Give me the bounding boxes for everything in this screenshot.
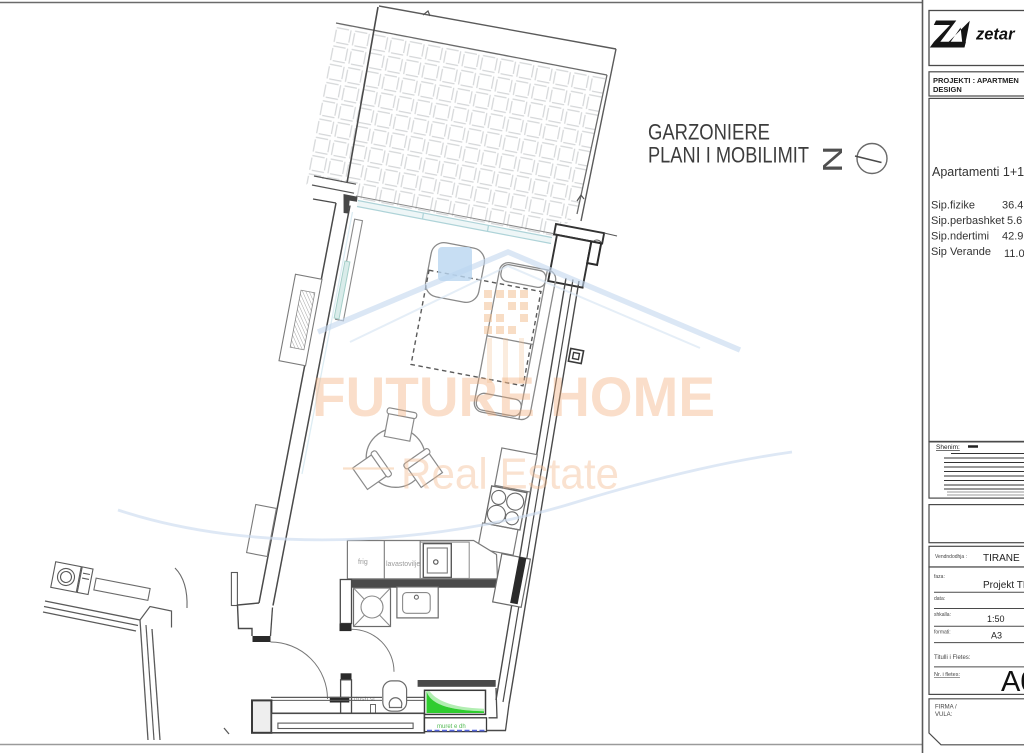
svg-text:Apartamenti 1+1: Apartamenti 1+1 bbox=[932, 165, 1024, 179]
svg-text:A0: A0 bbox=[1001, 666, 1024, 698]
svg-text:Vendndodhja :: Vendndodhja : bbox=[935, 554, 967, 560]
svg-text:Projekt TEK: Projekt TEK bbox=[983, 580, 1024, 591]
svg-text:Sip.ndertimi: Sip.ndertimi bbox=[931, 231, 989, 243]
svg-text:PROJEKTI : APARTMEN: PROJEKTI : APARTMEN bbox=[933, 76, 1019, 85]
svg-text:Shenim:: Shenim: bbox=[936, 444, 960, 451]
svg-text:lavastovilje: lavastovilje bbox=[386, 561, 420, 568]
svg-text:TIRANE: TIRANE bbox=[983, 553, 1020, 564]
svg-text:data:: data: bbox=[934, 596, 945, 602]
svg-text:frig: frig bbox=[358, 559, 368, 566]
svg-text:Nr. i fletes:: Nr. i fletes: bbox=[934, 672, 960, 678]
svg-text:GARZONIERE: GARZONIERE bbox=[648, 120, 770, 145]
svg-text:formati:: formati: bbox=[934, 630, 951, 636]
svg-text:36.4: 36.4 bbox=[1002, 200, 1023, 212]
svg-text:5.6: 5.6 bbox=[1007, 215, 1022, 227]
svg-text:shkalla:: shkalla: bbox=[934, 612, 951, 618]
svg-text:faza:: faza: bbox=[934, 574, 945, 580]
svg-text:Titulli i Fletes:: Titulli i Fletes: bbox=[934, 655, 971, 661]
svg-text:N: N bbox=[816, 146, 847, 173]
svg-text:Real Estate: Real Estate bbox=[401, 450, 619, 499]
svg-text:PLANI I MOBILIMIT: PLANI I MOBILIMIT bbox=[648, 143, 809, 168]
svg-text:muret e dh: muret e dh bbox=[437, 724, 466, 730]
svg-text:A3: A3 bbox=[991, 631, 1002, 641]
svg-text:VULA:: VULA: bbox=[935, 712, 953, 718]
svg-text:DESIGN: DESIGN bbox=[933, 85, 962, 94]
svg-text:FUTURE HOME: FUTURE HOME bbox=[312, 365, 715, 428]
svg-text:Sip.fizike: Sip.fizike bbox=[931, 200, 975, 212]
svg-text:zetar: zetar bbox=[975, 26, 1016, 44]
svg-text:Sip.perbashket: Sip.perbashket bbox=[931, 215, 1004, 227]
svg-text:Sip Verande: Sip Verande bbox=[931, 246, 991, 258]
svg-text:FIRMA /: FIRMA / bbox=[935, 705, 957, 711]
svg-text:11.0: 11.0 bbox=[1004, 248, 1024, 260]
svg-text:42.9: 42.9 bbox=[1002, 231, 1023, 243]
svg-text:1:50: 1:50 bbox=[987, 614, 1005, 624]
